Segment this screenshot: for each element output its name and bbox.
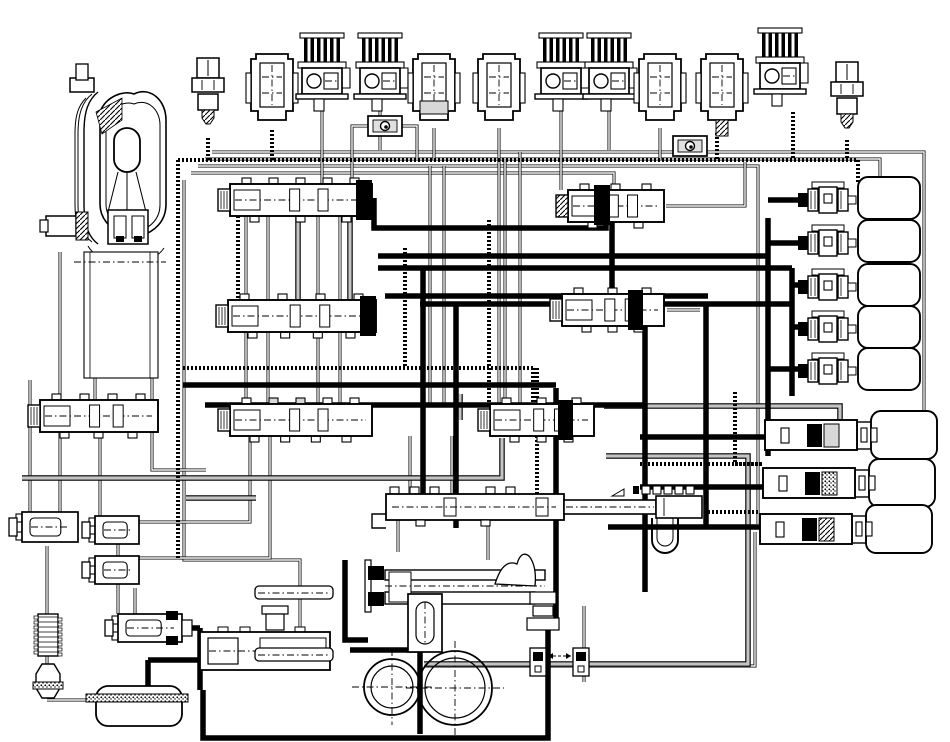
valve-second-left	[216, 294, 376, 338]
oil-cooler	[34, 614, 62, 656]
solenoid-4	[408, 54, 460, 120]
solenoid-8	[634, 54, 686, 120]
check-valve-2	[673, 136, 707, 156]
valve-small-left-3	[82, 556, 139, 584]
solenoid-5	[473, 54, 525, 120]
valve-center-1	[218, 398, 372, 442]
valve-upper-right	[556, 184, 664, 228]
case-block	[74, 252, 166, 378]
valve-small-left-2	[82, 516, 139, 544]
schematic-canvas	[0, 0, 950, 742]
oil-pan	[86, 686, 188, 726]
solenoid-1	[246, 54, 298, 120]
hydraulic-schematic	[0, 0, 950, 742]
valve-center-2	[478, 398, 594, 442]
valve-bottom-solenoid	[105, 611, 192, 645]
valve-mid-right	[550, 288, 664, 332]
valve-upper-left	[218, 178, 372, 222]
check-valve-1	[368, 116, 402, 136]
valve-left-regulator	[28, 394, 158, 438]
